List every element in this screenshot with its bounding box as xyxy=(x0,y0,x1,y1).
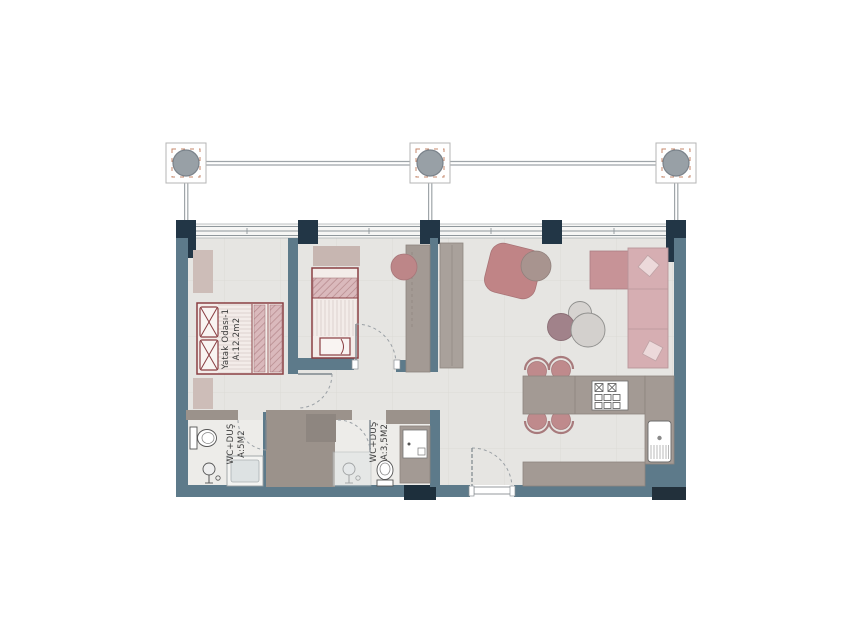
door-leaf xyxy=(474,487,511,494)
desk-chair xyxy=(391,254,417,280)
wall-bedroom2-south xyxy=(288,358,354,370)
column-marker xyxy=(166,143,206,183)
bathroom1-label: WC+DUŞ xyxy=(226,424,236,465)
bathroom1-area: A:5M2 xyxy=(237,430,247,458)
bedroom1-label: Yatak Odası-1 xyxy=(221,309,231,371)
wall-corner-dark xyxy=(652,487,686,500)
bedroom1-area: A:12.2m2 xyxy=(232,318,242,361)
wall-hall-bathroom2 xyxy=(430,410,440,487)
cooktop xyxy=(592,381,628,410)
toilet xyxy=(377,461,393,487)
nightstand xyxy=(193,378,213,409)
shower-tray xyxy=(333,452,371,486)
side-table xyxy=(521,251,551,281)
vanity-sink xyxy=(403,430,427,458)
column-marker xyxy=(410,143,450,183)
column-circle xyxy=(173,150,199,176)
floor-plan-page: Yatak Odası-1 A:12.2m2 xyxy=(0,0,862,640)
kitchen-sink xyxy=(648,421,671,462)
floor-plan-canvas: Yatak Odası-1 A:12.2m2 xyxy=(0,0,862,640)
wall-pier xyxy=(298,220,318,244)
wall-bottom-dark-segment xyxy=(404,485,436,500)
bathroom2-area: A:3,5M2 xyxy=(380,424,390,460)
corridor-closet xyxy=(306,414,336,442)
wall-bathroom1-north xyxy=(186,410,238,420)
coffee-table xyxy=(571,313,605,347)
kitchen-counter xyxy=(523,462,645,486)
wall-left xyxy=(176,238,188,497)
wall-right xyxy=(674,238,686,497)
column-circle xyxy=(663,150,689,176)
nightstand xyxy=(193,250,213,293)
wall-pier xyxy=(542,220,562,244)
tv-unit xyxy=(440,243,463,368)
structural-grid xyxy=(166,143,696,221)
column-circle xyxy=(417,150,443,176)
wall-bathroom2-north-right xyxy=(386,410,430,424)
dresser xyxy=(313,246,360,266)
wall-bathroom2-north-left xyxy=(335,410,352,420)
wall-bedroom2-living xyxy=(430,238,438,372)
pillow xyxy=(320,338,350,355)
sofa-chaise xyxy=(590,251,628,289)
vanity xyxy=(400,426,430,483)
single-bed xyxy=(312,268,358,358)
column-marker xyxy=(656,143,696,183)
wall-bedroom1-bedroom2 xyxy=(288,238,298,374)
coffee-table xyxy=(548,314,575,341)
